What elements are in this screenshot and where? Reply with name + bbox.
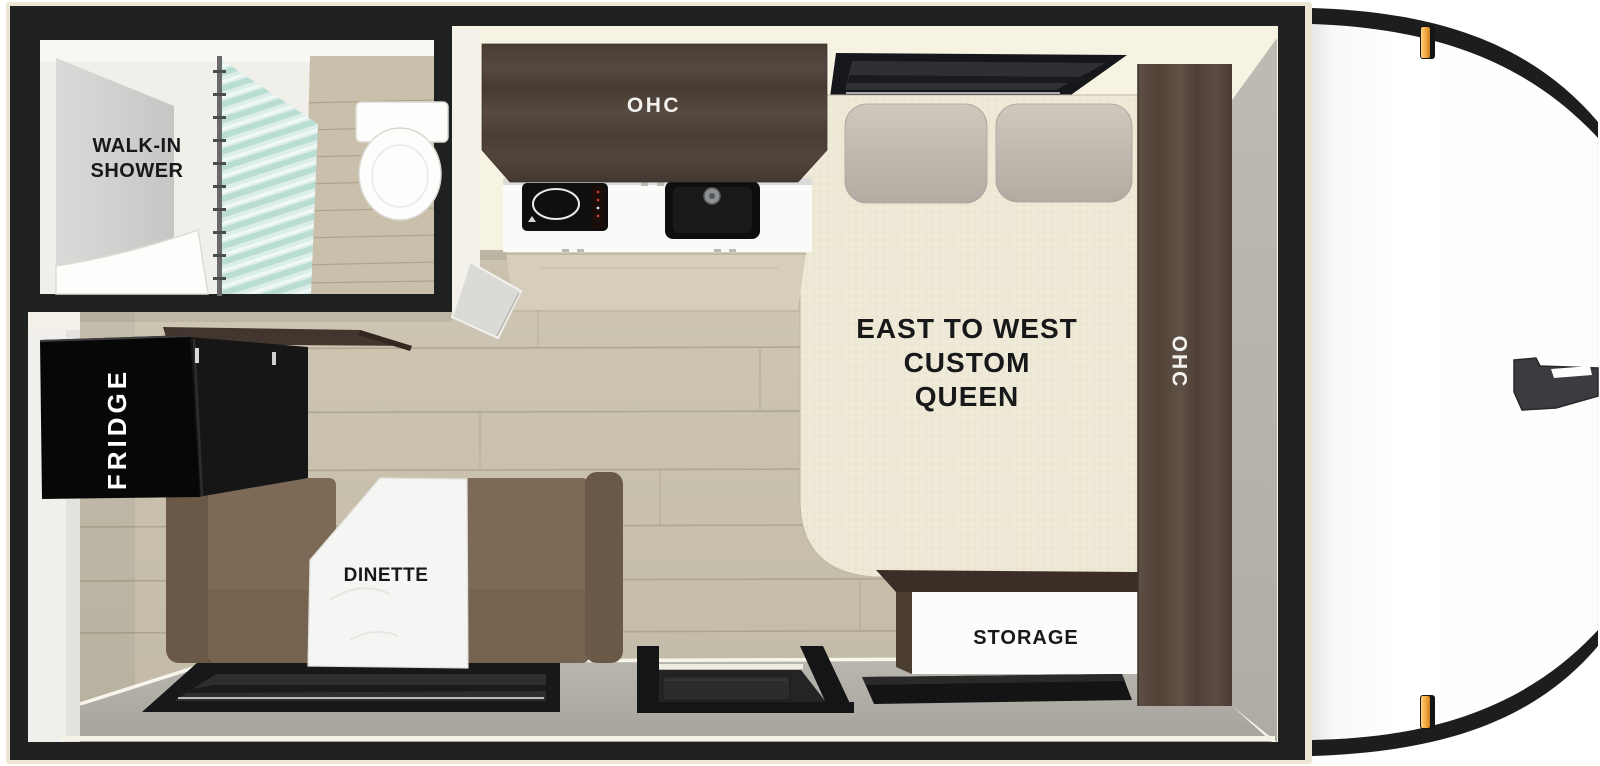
bed-label-line3: QUEEN xyxy=(915,381,1020,412)
bathroom: WALK-IN SHOWER xyxy=(22,22,452,312)
front-wall-face xyxy=(1232,38,1277,742)
fridge: FRIDGE xyxy=(40,335,308,499)
bed: EAST TO WEST CUSTOM QUEEN xyxy=(800,95,1138,577)
trailer-floorplan: EAST TO WEST CUSTOM QUEEN STORAGE xyxy=(0,0,1600,766)
bed-side-ohc-label: OHC xyxy=(1168,336,1191,389)
marker-light-bottom xyxy=(1420,695,1435,729)
dinette-label: DINETTE xyxy=(344,565,429,586)
marker-light-top xyxy=(1420,26,1435,59)
storage-label: STORAGE xyxy=(973,627,1079,649)
walk-in-shower-label-line1: WALK-IN xyxy=(92,135,181,157)
pillow-right xyxy=(996,104,1132,202)
kitchen-base-cabinet xyxy=(506,252,806,310)
bed-label-line1: EAST TO WEST xyxy=(856,313,1078,344)
bed-side-cabinet: OHC xyxy=(1138,64,1232,706)
floorplan-canvas: EAST TO WEST CUSTOM QUEEN STORAGE xyxy=(0,0,1600,766)
storage-cabinet: STORAGE xyxy=(876,570,1138,674)
front-cap xyxy=(1312,8,1598,756)
dinette-window xyxy=(142,662,560,712)
dinette: DINETTE xyxy=(166,472,623,668)
storage-step-mat xyxy=(862,674,1132,704)
bottom-wall-bottom-trim xyxy=(60,736,1275,741)
kitchen-ohc-label: OHC xyxy=(627,94,681,117)
cooktop xyxy=(522,183,608,231)
fridge-label: FRIDGE xyxy=(102,368,132,490)
bed-label-line2: CUSTOM xyxy=(904,347,1031,378)
dinette-bench-right-back xyxy=(585,472,623,663)
sink xyxy=(665,181,760,239)
kitchen: OHC xyxy=(482,44,827,310)
pillow-left xyxy=(845,104,987,203)
walk-in-shower-label-line2: SHOWER xyxy=(91,160,184,182)
